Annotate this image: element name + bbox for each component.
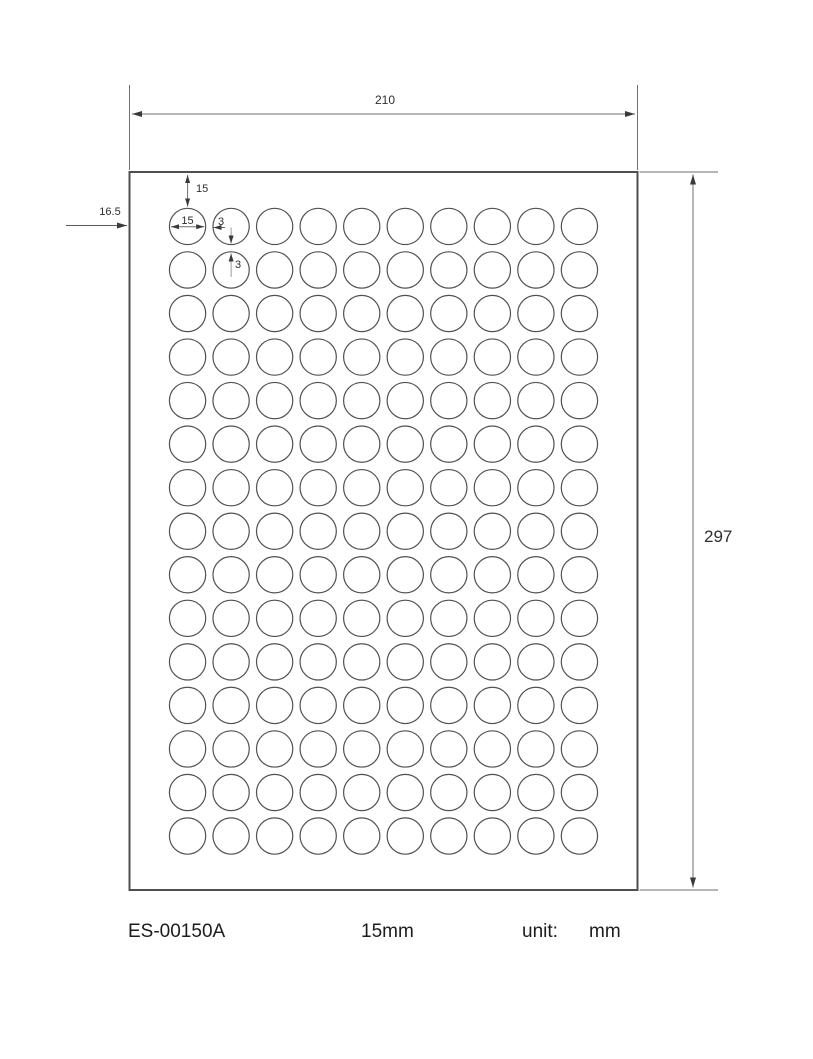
sheet-drawing bbox=[0, 0, 813, 1059]
sheet-width-label: 210 bbox=[358, 94, 412, 106]
sheet-height-label: 297 bbox=[704, 528, 732, 545]
unit-value: mm bbox=[589, 921, 621, 944]
horizontal-gap-label: 3 bbox=[215, 217, 227, 228]
unit-label: unit: bbox=[522, 921, 558, 944]
top-margin-label: 15 bbox=[196, 184, 208, 195]
label-size-text: 15mm bbox=[361, 921, 414, 944]
left-margin-label: 16.5 bbox=[92, 207, 128, 218]
label-sheet-technical-drawing: 210 297 16.5 15 15 3 3 ES-00150A 15mm un… bbox=[0, 0, 813, 1059]
vertical-gap-label: 3 bbox=[235, 260, 241, 271]
label-diameter-label: 15 bbox=[171, 216, 204, 227]
product-code: ES-00150A bbox=[128, 921, 225, 944]
